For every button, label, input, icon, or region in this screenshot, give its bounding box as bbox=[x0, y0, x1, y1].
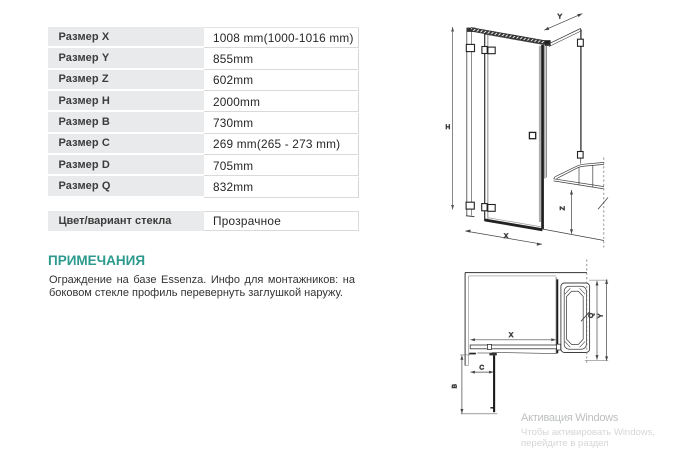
svg-text:H: H bbox=[446, 124, 451, 131]
svg-text:X: X bbox=[504, 233, 509, 240]
svg-text:Y: Y bbox=[558, 13, 563, 20]
svg-text:Z: Z bbox=[560, 206, 567, 210]
svg-text:Q: Q bbox=[588, 313, 595, 318]
svg-text:Y: Y bbox=[598, 313, 605, 318]
svg-text:B: B bbox=[451, 384, 458, 388]
svg-text:C: C bbox=[479, 364, 484, 371]
svg-text:X: X bbox=[509, 332, 514, 339]
